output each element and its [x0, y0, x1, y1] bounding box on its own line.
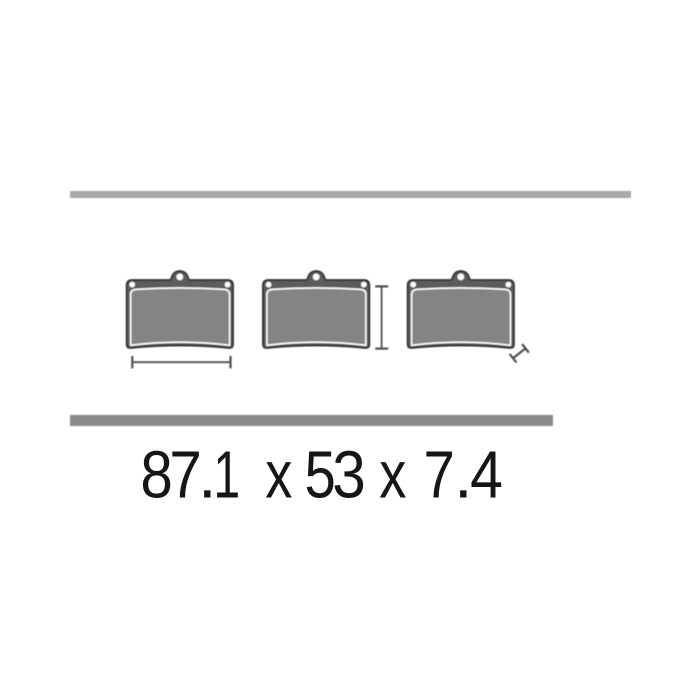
svg-text:4: 4 — [470, 438, 503, 512]
svg-text:x: x — [379, 437, 406, 512]
svg-text:5: 5 — [305, 438, 336, 513]
svg-text:3: 3 — [332, 437, 366, 513]
svg-text:x: x — [265, 437, 292, 512]
svg-text:7: 7 — [169, 438, 201, 513]
svg-text:1: 1 — [213, 438, 240, 513]
svg-text:7: 7 — [424, 438, 455, 513]
svg-text:8: 8 — [140, 438, 172, 513]
